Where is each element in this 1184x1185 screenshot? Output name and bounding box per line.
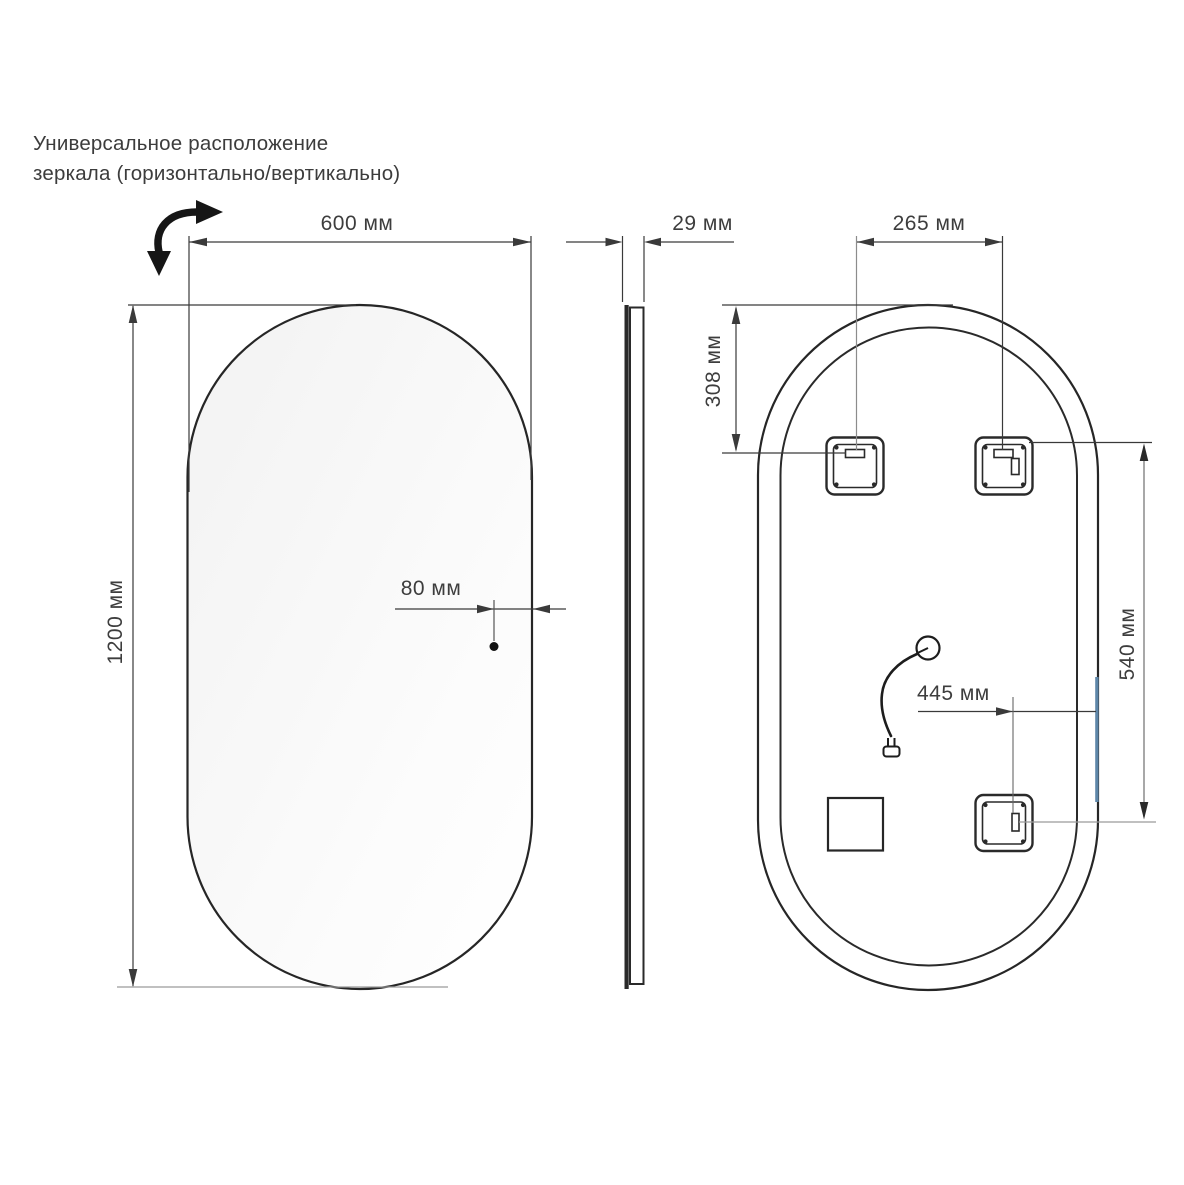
dimension-label-bracket-spacing: 265 мм xyxy=(869,212,989,236)
bracket-slot-vertical xyxy=(1012,814,1019,832)
rotation-arrow-icon xyxy=(147,200,223,276)
dimension-label-cable-offset: 445 мм xyxy=(917,682,990,706)
side-view-glass xyxy=(625,305,629,989)
plug-icon xyxy=(884,747,900,757)
dimension-label-front-height: 1200 мм xyxy=(104,561,128,683)
mounting-bracket-top-left xyxy=(827,438,884,495)
bracket-slot xyxy=(846,450,865,458)
junction-box xyxy=(828,798,883,851)
annotation-line2: зеркала (горизонтально/вертикально) xyxy=(33,159,400,189)
dimension-label-bracket-vertical-span: 540 мм xyxy=(1116,589,1140,699)
bracket-slot xyxy=(994,450,1013,458)
mounting-bracket-bottom-right xyxy=(976,795,1033,851)
front-view-outline xyxy=(188,305,533,989)
dimension-label-thickness: 29 мм xyxy=(650,212,755,236)
orientation-annotation: Универсальное расположение зеркала (гори… xyxy=(33,129,400,189)
back-view-outline xyxy=(758,305,1098,990)
side-view-outline xyxy=(625,305,644,989)
thickness-dimension xyxy=(566,236,734,302)
side-view-back-panel xyxy=(630,308,644,985)
mounting-bracket-top-right xyxy=(976,438,1033,495)
technical-drawing: Универсальное расположение зеркала (гори… xyxy=(0,0,1184,1185)
dimension-label-bracket-top-offset: 308 мм xyxy=(702,321,726,421)
dimension-label-sensor-offset: 80 мм xyxy=(381,577,481,601)
touch-sensor-dot xyxy=(490,642,499,651)
dimension-label-front-width: 600 мм xyxy=(297,212,417,236)
bracket-slot-vertical xyxy=(1012,459,1020,475)
annotation-line1: Универсальное расположение xyxy=(33,129,400,159)
